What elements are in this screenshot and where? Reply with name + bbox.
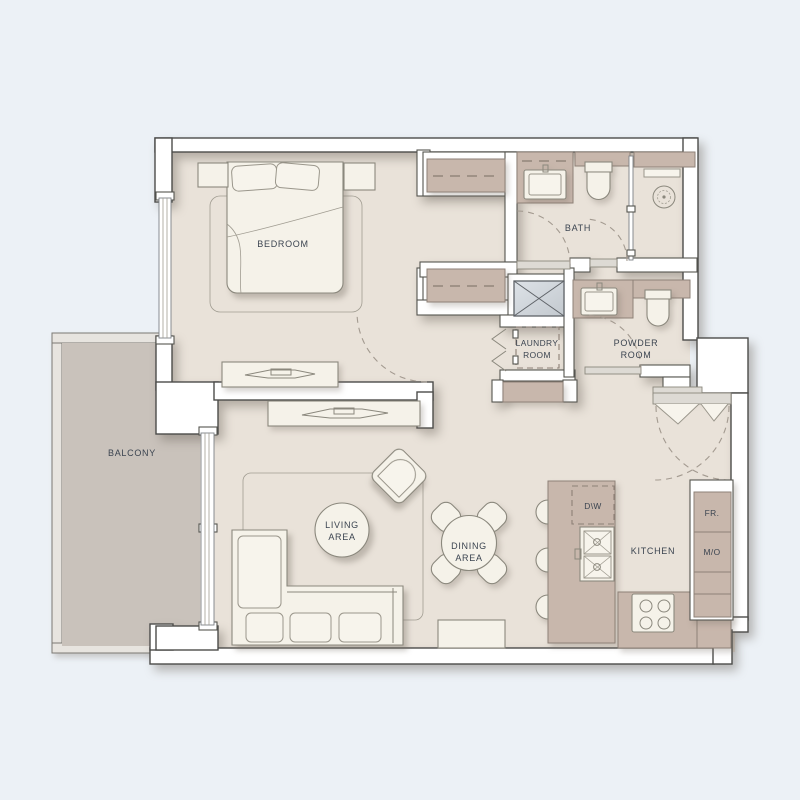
hall-closet-upper [427,159,505,192]
bath-sink [524,165,566,199]
sideboard [438,620,505,648]
kitchen-sink [575,527,614,581]
nightstand-right [344,163,375,190]
media-console [268,401,420,426]
bath-door2-sill [590,259,617,267]
shower-niche [644,169,680,177]
seat-cushion [290,613,331,642]
powder-sink [581,283,617,315]
cabinet-box [694,572,731,594]
hall-cabinet [503,382,563,402]
laundry-label-line1: LAUNDRY [516,338,559,348]
balcony-sliding-door [199,427,217,630]
powder-label-line1: POWDER [614,338,659,348]
kitchen-island [536,481,615,643]
entry-threshold [653,393,731,404]
wall-divider-block [156,382,218,434]
dining-label-line1: DINING [451,541,487,551]
wall-cabinet-right [563,380,577,402]
powder-toilet [645,290,671,326]
powder-door-sill [585,367,641,374]
cooktop [632,594,674,632]
wall-cabinet-left [492,380,503,402]
hall-closet-lower [427,269,505,302]
bedroom-label: BEDROOM [257,239,308,249]
living-label-line2: AREA [328,532,355,542]
dining-label-line2: AREA [455,553,482,563]
nightstand-left [198,163,228,187]
bath-label: BATH [565,223,591,233]
pillow [231,162,320,191]
bedroom-dresser [222,362,338,387]
kitchen-label: KITCHEN [631,546,675,556]
seat-cushion [246,613,283,642]
wall-bath-left [505,152,517,262]
bedroom-window [156,192,174,344]
chaise-cushion [238,536,281,608]
bath-door-sill [517,261,570,269]
wall-laundry-top [500,315,567,327]
service-shaft [514,281,564,316]
cabinet-box [694,594,731,617]
powder-label-line2: ROOM [621,350,652,360]
wall-right-upper [683,138,698,340]
floor-plan-canvas: BEDROOM BATH LAUNDRY ROOM POWDER ROOM BA… [0,0,800,800]
wall-powder-bottom [640,365,690,377]
balcony-label: BALCONY [108,448,156,458]
wall-bottom [150,648,714,664]
entry-wall-block [697,338,748,393]
bath-toilet [585,162,612,200]
seat-cushion [339,613,381,642]
fridge-label: FR. [705,508,720,518]
micro-oven-label: M/O [703,547,720,557]
laundry-label-line2: ROOM [523,350,551,360]
coffee-table [315,503,369,557]
living-label-line1: LIVING [325,520,359,530]
shower-shelf [634,152,695,167]
dishwasher-label: D\W [584,501,601,511]
bed [227,162,343,293]
